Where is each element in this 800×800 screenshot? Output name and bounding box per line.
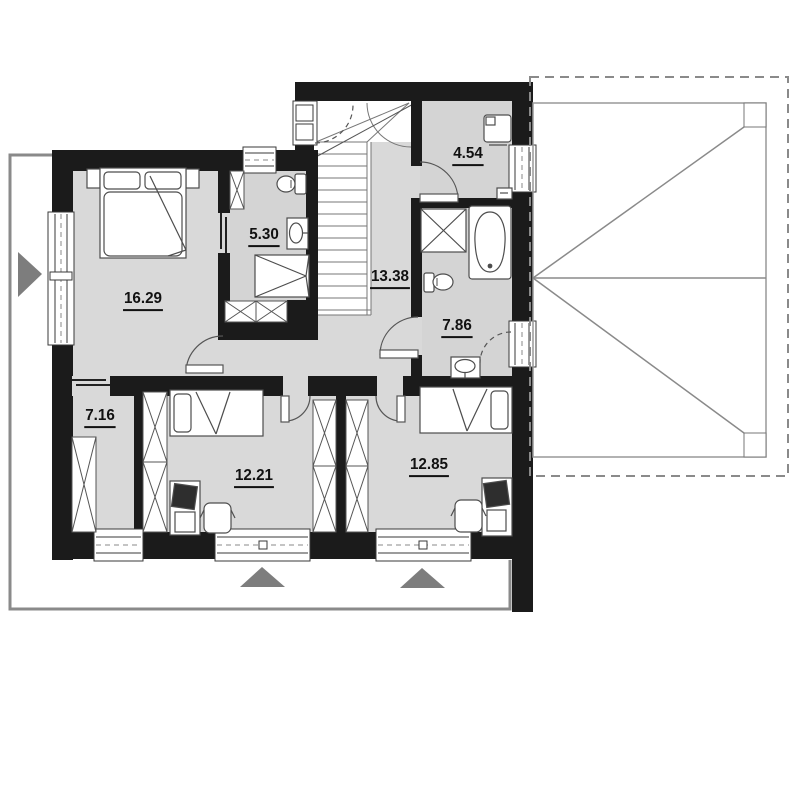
washing-machine-icon <box>484 115 511 145</box>
roof-eaves-dashed-outline <box>530 77 788 476</box>
washbasin-main-icon <box>451 357 480 378</box>
balcony-door-stair <box>293 101 317 145</box>
roof-slope-triangle-left-icon <box>240 567 285 587</box>
wall-master-ensuite-upper <box>218 171 230 213</box>
window-top-ensuite <box>243 147 276 173</box>
stair-flight <box>314 142 371 315</box>
direction-arrow-icon <box>18 252 42 297</box>
washbasin-ensuite-icon <box>287 218 308 249</box>
floor-plan-drawing <box>0 0 800 800</box>
wall-exterior-top <box>295 82 533 101</box>
desk-child2-icon <box>482 478 512 536</box>
wall-hall-utility <box>411 100 422 166</box>
floor-door-gap-child1 <box>283 376 308 396</box>
room-area-label-master-bedroom: 16.29 <box>123 291 163 311</box>
window-bottom-wardrobe-room <box>94 529 143 561</box>
cabinet-ensuite-tall <box>230 171 244 209</box>
wardrobe-closet-right <box>346 400 368 532</box>
room-area-label-child2: 12.85 <box>409 457 449 477</box>
wall-band-1 <box>52 376 72 396</box>
sliding-door-wardrobe-room <box>72 376 110 396</box>
floor-hall-b <box>314 315 371 376</box>
wall-hall-bath <box>411 208 422 317</box>
double-bed-icon <box>87 168 199 258</box>
single-bed-child1-icon <box>170 390 263 436</box>
window-right-2 <box>509 321 536 367</box>
bathtub-icon <box>469 206 511 279</box>
room-area-label-hall: 13.38 <box>370 269 410 289</box>
floor-hall-a <box>371 142 411 376</box>
toilet-ensuite-icon <box>277 174 306 194</box>
floor-hall-corridor <box>230 340 314 376</box>
floor-door-gap-child2 <box>377 376 403 396</box>
wardrobe-closet-left <box>313 400 336 532</box>
room-area-label-ensuite-bath: 5.30 <box>248 227 279 247</box>
wall-corridor-top <box>218 322 318 340</box>
wardrobe-ensuite-low <box>225 301 287 322</box>
desk-child1-icon <box>170 481 200 535</box>
single-bed-child2-icon <box>420 387 512 433</box>
roof-post-top <box>744 103 766 127</box>
wardrobe-child1-left <box>143 392 167 532</box>
window-left <box>48 212 74 345</box>
sliding-door-ensuite <box>218 213 230 253</box>
roof-wallplate-outline <box>533 103 766 457</box>
wall-band-3 <box>308 376 377 396</box>
room-area-label-child1: 12.21 <box>234 468 274 488</box>
toilet-main-icon <box>424 273 453 292</box>
floor-hall-door-gap-utility <box>411 166 420 198</box>
wall-wardrobe-child1 <box>134 396 143 532</box>
roof-hip-line-lower <box>533 278 744 433</box>
floor-plan: 16.29 5.30 4.54 13.38 7.86 7.16 12.21 12… <box>0 0 800 800</box>
window-right-1 <box>509 145 536 192</box>
chair-child1-icon <box>200 503 235 533</box>
chair-child2-icon <box>451 500 486 532</box>
window-bottom-child1 <box>215 529 310 561</box>
roof-hip-line-upper <box>533 127 744 278</box>
room-area-label-utility: 4.54 <box>452 146 483 166</box>
window-bottom-child2 <box>376 529 471 561</box>
shower-main-icon <box>421 209 466 252</box>
wall-closet-spine <box>336 396 346 532</box>
utility-sink-icon <box>497 188 512 199</box>
garage-roof <box>530 77 788 476</box>
room-area-label-wardrobe-room: 7.16 <box>84 408 115 428</box>
wardrobe-walkin-closet <box>72 437 96 532</box>
roof-slope-triangle-right-icon <box>400 568 445 588</box>
shower-ensuite-icon <box>255 255 309 297</box>
room-area-label-main-bath: 7.86 <box>441 318 472 338</box>
floor-hall-door-gap-bath <box>411 317 422 355</box>
roof-post-bottom <box>744 433 766 457</box>
